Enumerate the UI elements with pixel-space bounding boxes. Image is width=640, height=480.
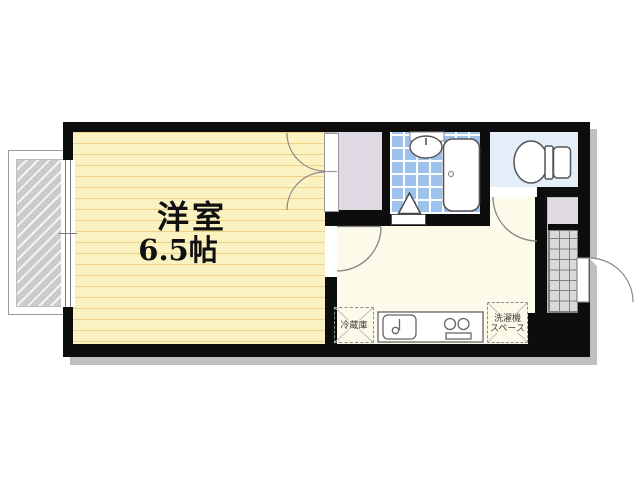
closet <box>337 132 382 210</box>
refrigerator-label: 冷蔵庫 <box>334 307 374 343</box>
wall-kitchen-genkan <box>535 187 547 313</box>
washer-space-label: 洗濯機 スペース <box>487 302 528 343</box>
wall-room-east-mid <box>325 210 390 226</box>
shoe-cabinet <box>548 198 578 224</box>
wall-bathroom-toilet <box>480 132 490 226</box>
main-room-name: 洋室 <box>112 200 272 235</box>
washer-label-line2: スペース <box>489 323 526 333</box>
wall-closet-bathroom <box>382 132 390 226</box>
closet-door-leaves <box>324 133 339 212</box>
wall-genkan-band <box>548 224 578 230</box>
wall-top <box>63 122 590 132</box>
floor-plan: 洋室 6.5帖 冷蔵庫 洗濯機 スペース <box>0 0 640 480</box>
main-room-label: 洋室 6.5帖 <box>112 200 272 267</box>
wall-left-lower <box>63 307 73 345</box>
toilet-door-opening <box>490 187 537 197</box>
wall-bottom-right-mass <box>528 313 590 344</box>
kitchen-hall <box>490 197 535 226</box>
wall-left-upper <box>63 132 73 160</box>
washer-label-line1: 洗濯機 <box>493 313 522 323</box>
refrigerator-label-text: 冷蔵庫 <box>339 320 368 330</box>
wall-bottom <box>63 344 590 357</box>
kitchen-door-opening <box>325 226 337 277</box>
genkan-tiles <box>548 230 578 313</box>
toilet-room <box>490 132 578 187</box>
balcony-hatch <box>16 159 66 307</box>
bathroom <box>390 132 480 214</box>
bathroom-threshold <box>391 214 426 225</box>
balcony-window-opening <box>61 160 75 307</box>
main-room-area: 6.5帖 <box>84 235 272 267</box>
